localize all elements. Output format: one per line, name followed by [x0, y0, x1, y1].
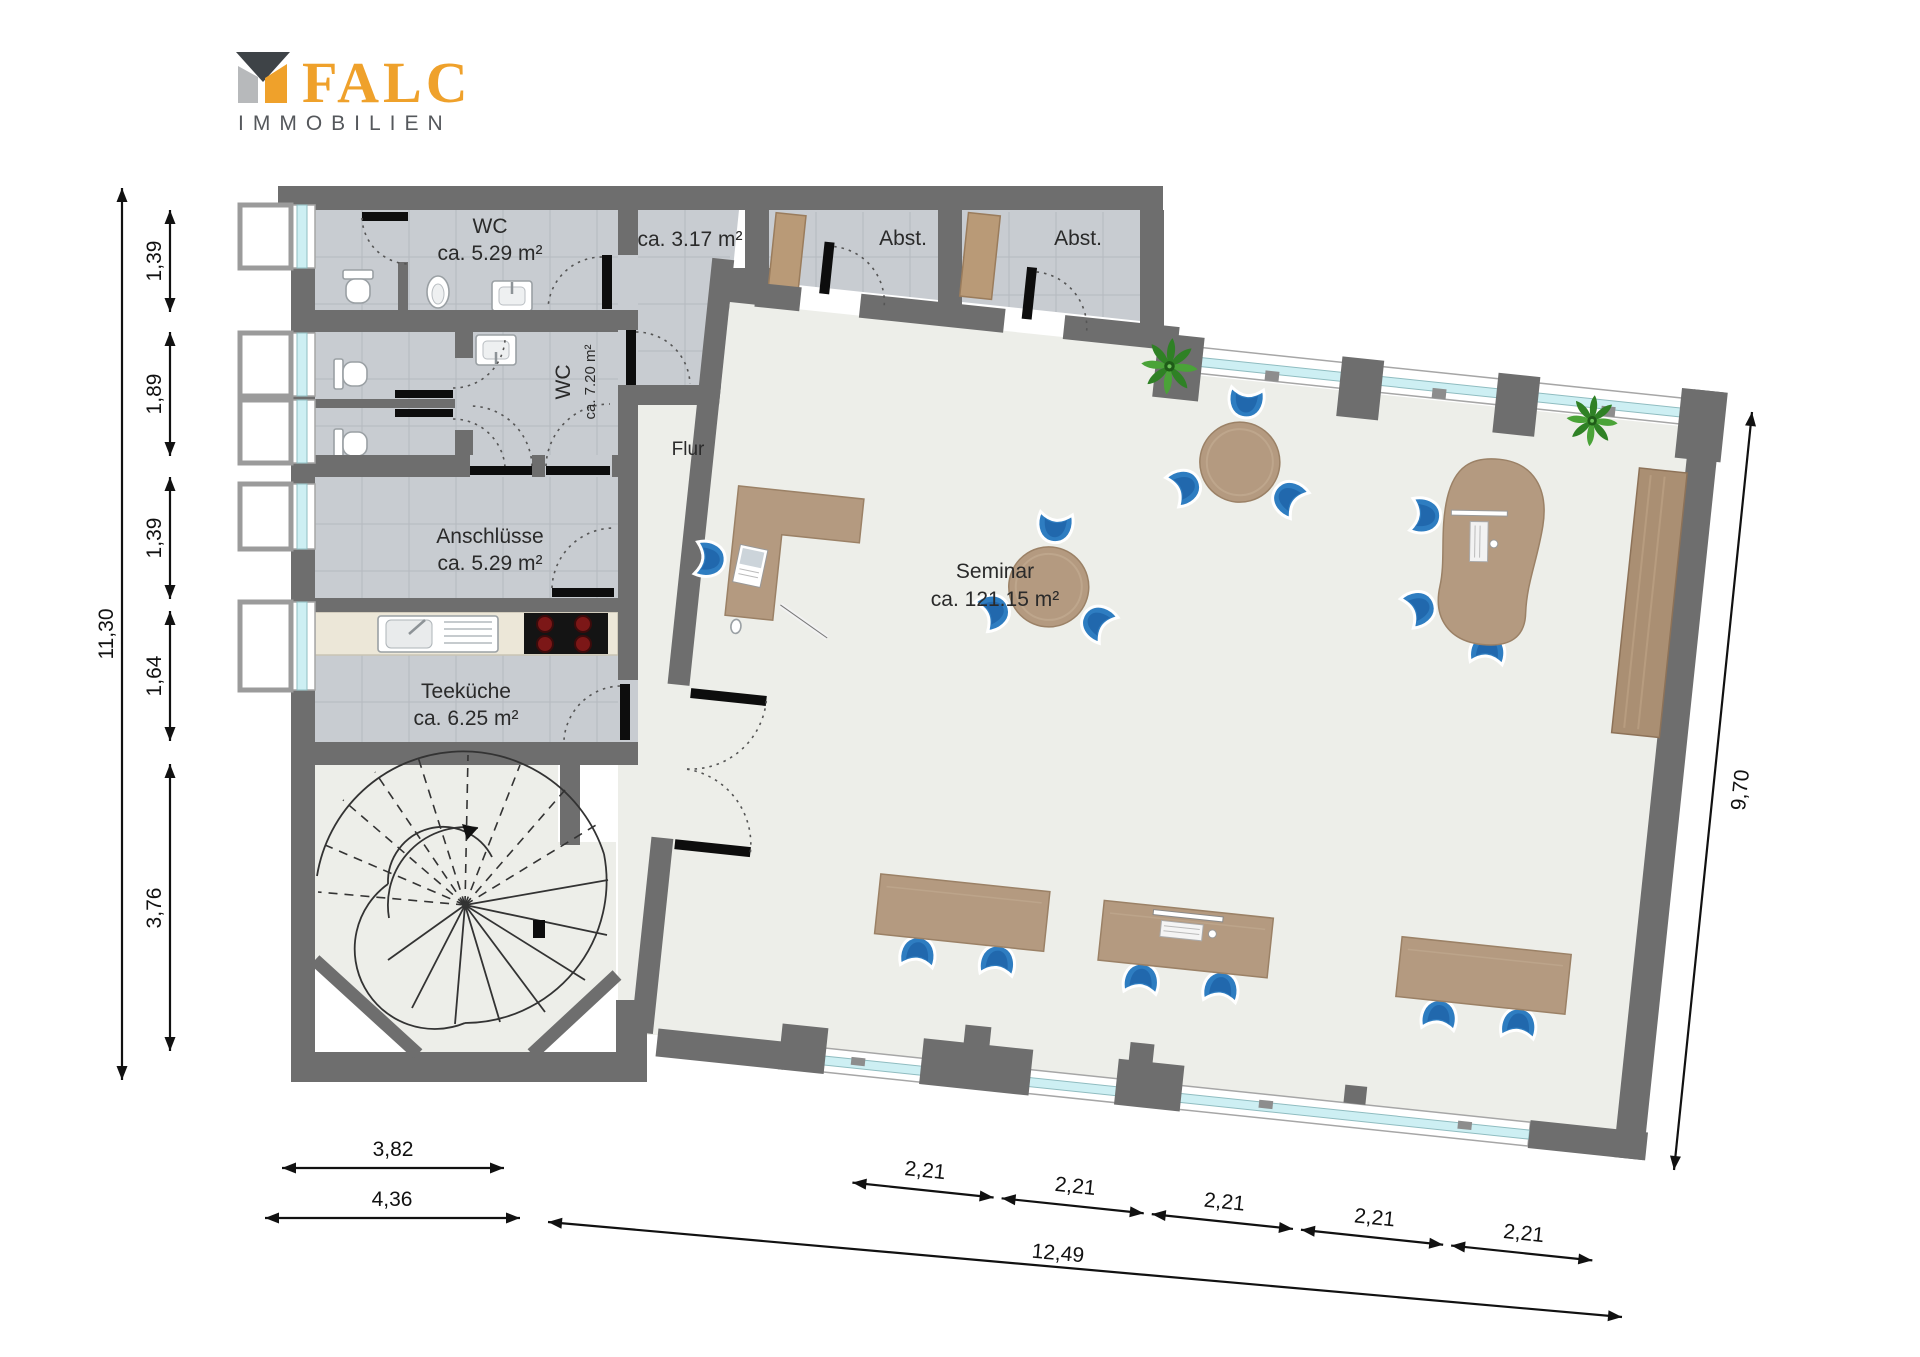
door-leaf	[552, 588, 614, 597]
sink-icon	[476, 335, 516, 365]
window-box-icon	[240, 602, 291, 690]
bottom-left-wall	[291, 1052, 646, 1082]
abst2-east-wall	[1140, 210, 1164, 328]
urinal-bowl	[432, 284, 444, 304]
wall-wc2-anschluesse	[315, 455, 470, 477]
window-pillar	[1114, 1059, 1184, 1112]
teekueche-name: Teeküche	[421, 680, 511, 703]
window-pillar	[778, 1023, 829, 1074]
door-leaf	[626, 330, 636, 385]
wc1-name: WC	[473, 215, 508, 238]
window-box-icon	[240, 400, 291, 463]
wall-stub	[532, 455, 545, 477]
abst2-name: Abst.	[1054, 227, 1102, 250]
dim-221-3: 2,21	[1203, 1189, 1246, 1216]
door-leaf	[546, 466, 610, 475]
wc2-area: ca. 7.20 m²	[582, 344, 599, 419]
seminar-north-wall	[754, 283, 801, 312]
anschluesse-name: Anschlüsse	[436, 525, 543, 548]
teekueche-area: ca. 6.25 m²	[413, 707, 518, 730]
window-box-icon	[240, 484, 291, 549]
dim-left-seg-2: 1,89	[143, 374, 166, 415]
floorplan-svg: FALC IMMOBILIEN	[0, 0, 1920, 1357]
anschluesse-area: ca. 5.29 m²	[437, 552, 542, 575]
window-pillar	[1336, 356, 1384, 420]
wall-wc1-wc2	[315, 310, 618, 332]
stall-wall	[455, 430, 473, 455]
mouse-icon	[730, 619, 741, 634]
wall-tab	[1343, 1085, 1367, 1105]
floorplan-page: FALC IMMOBILIEN	[0, 0, 1920, 1357]
door-leaf	[470, 466, 532, 475]
logo-brand-text: FALC	[302, 50, 472, 115]
seminar-area: ca. 121.15 m²	[931, 588, 1059, 611]
logo-subtitle-text: IMMOBILIEN	[238, 112, 452, 135]
stall-door	[395, 409, 453, 417]
stair-door-marker	[533, 920, 545, 938]
dim-221-5: 2,21	[1502, 1220, 1545, 1247]
dim-left-seg-5: 3,76	[143, 888, 166, 929]
window-pillar	[1492, 373, 1540, 437]
dim-left-total: 11,30	[95, 609, 118, 660]
storage-small-area: ca. 3.17 m²	[637, 228, 742, 251]
door-leaf	[362, 212, 408, 221]
seminar-wing: 2,21 2,21 2,21 2,21 2,21	[617, 230, 1733, 1270]
door-leaf	[602, 255, 612, 309]
dim-left-seg-4: 1,64	[143, 655, 166, 696]
dim-right-total: 9,70	[1727, 769, 1754, 812]
dim-382: 3,82	[373, 1138, 414, 1161]
wall-abst1-abst2	[938, 210, 962, 310]
dim-436: 4,36	[372, 1188, 413, 1211]
dim-left-seg-3: 1,39	[143, 518, 166, 559]
mullion	[1457, 1121, 1472, 1130]
stall-door	[395, 390, 453, 398]
wc2-name: WC	[552, 365, 575, 400]
toilet-icon	[343, 270, 373, 303]
toilet-icon	[334, 429, 367, 459]
dim-bottom-total: 12,49	[1031, 1240, 1085, 1267]
sink-icon	[492, 281, 532, 311]
flur-west-wall	[618, 405, 638, 680]
mullion	[851, 1057, 866, 1066]
mullion	[1432, 388, 1447, 399]
door-leaf	[620, 684, 630, 740]
cooktop-icon	[524, 613, 608, 654]
wall-tab	[963, 1025, 991, 1048]
wall-v2b	[618, 310, 638, 330]
wall-teekueche-stair	[315, 742, 638, 765]
bottom-segment-dimensions: 2,21 2,21 2,21 2,21 2,21	[852, 1152, 1596, 1266]
stall-partition	[315, 399, 455, 408]
dim-221-4: 2,21	[1353, 1204, 1396, 1231]
mullion	[1265, 370, 1280, 381]
flur-name: Flur	[672, 439, 705, 460]
top-wall	[278, 186, 1163, 210]
abst1-name: Abst.	[879, 227, 927, 250]
toilet-icon	[334, 359, 367, 389]
window-box-icon	[240, 205, 291, 268]
wc1-area: ca. 5.29 m²	[437, 242, 542, 265]
dim-left-seg-1: 1,39	[143, 241, 166, 282]
wall-v2a	[618, 210, 638, 255]
logo: FALC IMMOBILIEN	[236, 50, 472, 135]
dim-221-1: 2,21	[904, 1157, 947, 1184]
wall-tab	[1129, 1042, 1155, 1064]
stall-wall	[455, 332, 473, 358]
mullion	[1258, 1100, 1273, 1109]
seminar-name: Seminar	[956, 560, 1034, 583]
wall-anschluesse-teekueche	[315, 598, 618, 612]
window-box-icon	[240, 333, 291, 396]
wc1-partition	[398, 262, 408, 310]
dim-221-2: 2,21	[1054, 1173, 1097, 1200]
door-gap	[618, 255, 638, 310]
